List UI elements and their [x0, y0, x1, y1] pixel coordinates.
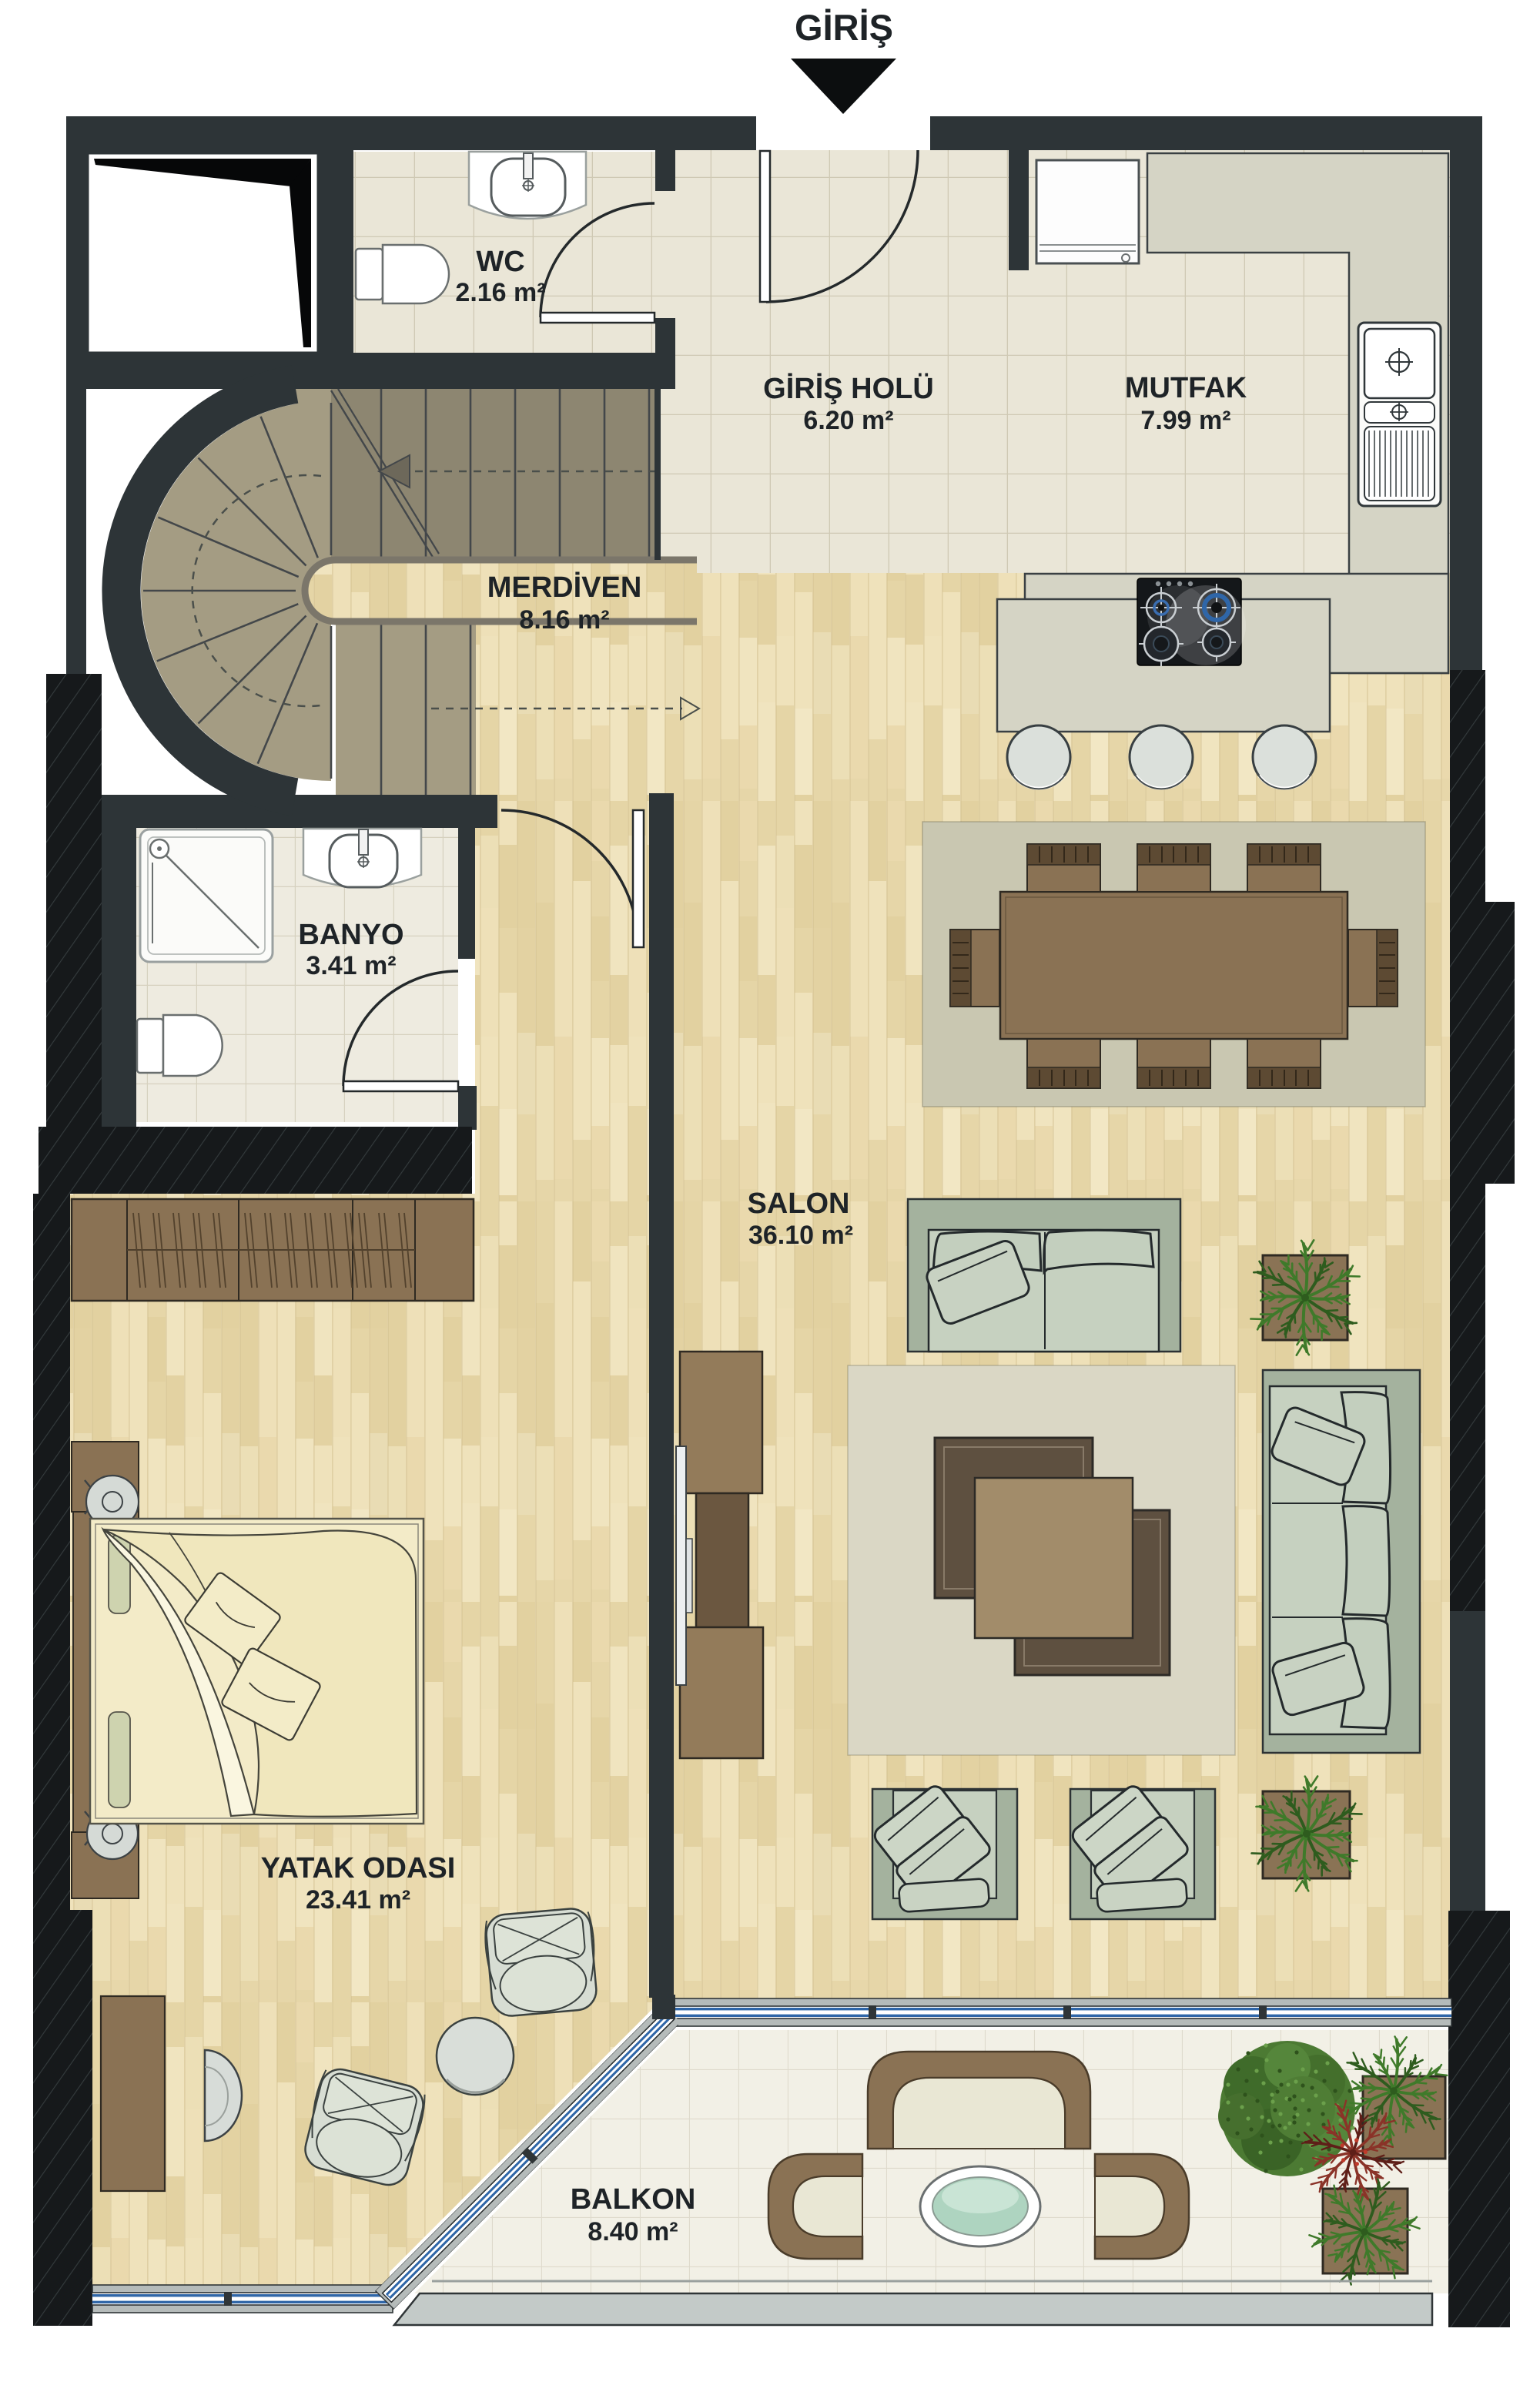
svg-text:WC: WC [476, 246, 524, 278]
svg-text:GİRİŞ HOLÜ: GİRİŞ HOLÜ [763, 372, 934, 405]
svg-text:YATAK ODASI: YATAK ODASI [261, 1852, 456, 1884]
svg-text:7.99 m²: 7.99 m² [1140, 406, 1230, 435]
svg-text:BANYO: BANYO [298, 919, 403, 951]
svg-text:SALON: SALON [748, 1188, 850, 1220]
svg-text:GİRİŞ: GİRİŞ [795, 7, 893, 48]
svg-text:3.41 m²: 3.41 m² [306, 951, 396, 980]
svg-text:23.41 m²: 23.41 m² [306, 1885, 410, 1915]
svg-text:BALKON: BALKON [571, 2183, 696, 2216]
svg-text:2.16 m²: 2.16 m² [455, 278, 545, 307]
svg-text:8.16 m²: 8.16 m² [519, 605, 609, 635]
svg-text:6.20 m²: 6.20 m² [803, 406, 893, 435]
svg-text:36.10 m²: 36.10 m² [748, 1221, 853, 1250]
svg-text:MUTFAK: MUTFAK [1125, 372, 1247, 404]
svg-text:8.40 m²: 8.40 m² [588, 2217, 678, 2246]
svg-text:MERDİVEN: MERDİVEN [487, 571, 642, 604]
